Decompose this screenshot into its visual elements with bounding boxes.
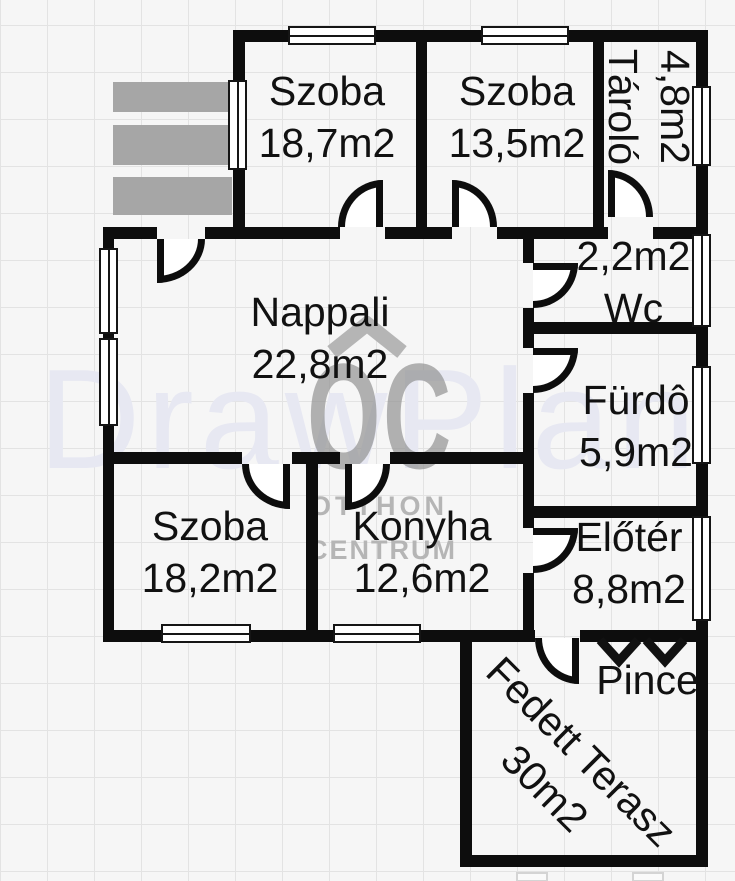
room-area: 22,8m2 [230,338,410,390]
room-area: 5,9m2 [560,426,712,478]
window [288,26,376,45]
wall [416,30,427,239]
room-label-tarolo: 4,8m2 Tároló [597,32,701,182]
room-area: 13,5m2 [427,117,607,169]
room-area: 18,7m2 [237,117,417,169]
room-name: Fürdô [560,374,712,426]
room-area: 18,2m2 [120,552,300,604]
room-label-nappali: Nappali 22,8m2 [230,286,410,390]
room-label-konyha: Konyha 12,6m2 [332,500,512,604]
room-name: Konyha [332,500,512,552]
faint-window-mark [516,872,548,881]
stair-step [113,82,232,112]
door-arc [452,180,497,227]
wall [523,227,534,263]
room-label-szoba1: Szoba 18,7m2 [237,65,417,169]
room-name: Szoba [120,500,300,552]
room-label-szoba2: Szoba 13,5m2 [427,65,607,169]
wall [103,227,157,239]
door-arc [338,180,383,227]
room-name: Pince [590,659,705,701]
window [481,26,569,45]
room-name: Wc [556,282,711,334]
wall [306,452,318,642]
room-area: 2,2m2 [556,230,711,282]
window [99,248,118,334]
stair-step [113,125,232,165]
room-label-furdo: Fürdô 5,9m2 [560,374,712,478]
room-label-wc: 2,2m2 Wc [556,230,711,334]
room-name: Szoba [427,65,607,117]
window [333,624,421,643]
window [99,338,118,426]
wall [205,227,340,239]
room-name: Nappali [230,286,410,338]
room-area: 8,8m2 [553,563,705,615]
floor-plan-canvas: DrawPlan OC OTTHON CENTRUM [0,0,735,881]
window [161,624,251,643]
room-area: 4,8m2 [649,32,701,182]
room-name: Szoba [237,65,417,117]
room-area: 12,6m2 [332,552,512,604]
door-arc [157,239,205,283]
room-name: Előtér [553,511,705,563]
room-name: Tároló [597,32,649,182]
stair-step [113,177,232,215]
wall [390,452,534,464]
room-label-pince: Pince [590,659,705,701]
wall [103,452,242,464]
room-label-eloter: Előtér 8,8m2 [553,511,705,615]
room-label-szoba3: Szoba 18,2m2 [120,500,300,604]
